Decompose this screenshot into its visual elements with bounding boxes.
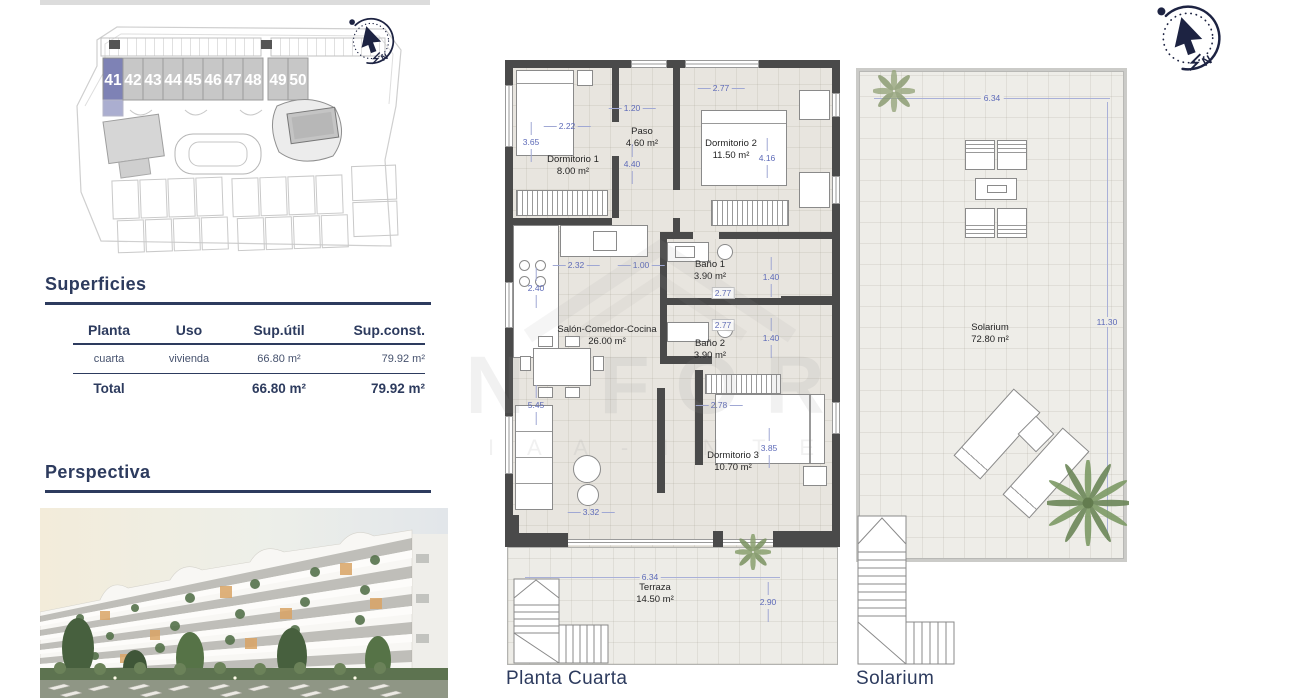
dim-label: 1.40 — [763, 255, 780, 299]
col-planta: Planta — [73, 322, 145, 338]
floor-plan-planta-cuarta: Dormitorio 18.00 m² Paso4.60 m² Dormitor… — [505, 60, 845, 672]
dim-label: 2.40 — [528, 266, 545, 310]
unit-number: 43 — [144, 72, 162, 89]
nightstand — [577, 70, 593, 86]
window — [832, 176, 840, 204]
chair — [593, 356, 604, 371]
cell-planta: cuarta — [73, 353, 145, 365]
wall — [513, 218, 612, 225]
room-label: Terraza14.50 m² — [636, 582, 674, 606]
superficies-section: Superficies Planta Uso Sup.útil Sup.cons… — [45, 274, 431, 402]
window — [832, 93, 840, 117]
wall — [660, 232, 840, 239]
col-sup-const: Sup.const. — [325, 322, 425, 338]
chair — [565, 387, 580, 398]
table-row: cuarta vivienda 66.80 m² 79.92 m² — [73, 345, 425, 373]
wall — [505, 60, 840, 68]
plant-icon — [735, 534, 771, 570]
room-label: Baño 23.90 m² — [694, 338, 726, 362]
dim-label: 1.20 — [607, 103, 658, 113]
total-sup-util: 66.80 m² — [233, 381, 325, 396]
staircase — [513, 578, 609, 664]
plan-caption-planta-cuarta: Planta Cuarta — [506, 668, 627, 690]
wall — [612, 156, 619, 218]
toilet — [717, 244, 733, 260]
bathroom-sink-basin — [675, 246, 695, 258]
building-block — [103, 114, 167, 179]
building-render-photo — [40, 508, 448, 698]
door-opening — [693, 232, 719, 239]
chair — [997, 208, 1027, 238]
unit-number: 45 — [184, 72, 202, 89]
dim-label: 1.00 — [616, 260, 667, 270]
dim-label: 11.30 — [1094, 317, 1121, 327]
page: 41 42 43 44 45 46 47 48 49 50 — [0, 0, 1290, 698]
unit-number: 46 — [204, 72, 222, 89]
perspectiva-section: Perspectiva — [45, 462, 431, 493]
dim-label: 2.77 — [712, 287, 735, 299]
window — [505, 85, 513, 147]
chair — [965, 140, 995, 170]
unit-number: 48 — [244, 72, 262, 89]
room-label: Dormitorio 211.50 m² — [705, 138, 757, 162]
dim-label: 3.85 — [761, 426, 778, 470]
sliding-door — [568, 539, 713, 545]
total-sup-const: 79.92 m² — [325, 381, 425, 396]
superficies-table: Planta Uso Sup.útil Sup.const. cuarta vi… — [73, 317, 425, 402]
wall — [713, 531, 723, 547]
wall — [505, 533, 568, 547]
table-inlay — [987, 185, 1007, 193]
dim-label: 2.78 — [694, 400, 745, 410]
chair — [520, 356, 531, 371]
window — [685, 60, 759, 68]
dim-label: 1.40 — [763, 316, 780, 360]
title-divider — [45, 302, 431, 305]
dim-label: 5.45 — [528, 383, 545, 427]
unit-number: 50 — [289, 72, 306, 89]
room-label: Solarium72.80 m² — [971, 322, 1009, 346]
wall — [612, 68, 619, 122]
closet — [799, 90, 830, 120]
wardrobe — [516, 190, 608, 216]
room-label: Dormitorio 310.70 m² — [707, 450, 759, 474]
kitchen-appliance — [593, 231, 617, 251]
wall — [781, 296, 840, 305]
wardrobe — [711, 200, 789, 226]
dim-label: 3.65 — [523, 120, 540, 164]
compass-icon: N — [1150, 0, 1226, 76]
dim-label: 2.32 — [551, 260, 602, 270]
compass-icon: N — [344, 14, 398, 68]
unit-number: 47 — [224, 72, 241, 89]
entry-door — [631, 60, 667, 68]
wall — [695, 370, 703, 465]
col-uso: Uso — [145, 322, 233, 338]
dining-table — [533, 348, 591, 386]
dim-label: 6.34 — [981, 93, 1004, 103]
side-table — [573, 455, 601, 483]
unit-number: 41 — [104, 72, 122, 89]
col-sup-util: Sup.útil — [233, 322, 325, 338]
wall — [773, 531, 840, 547]
dim-label: 2.77 — [712, 319, 735, 331]
floor-plan-solarium: 6.34 11.30 Solarium72.80 m² — [855, 62, 1133, 674]
table-header: Planta Uso Sup.útil Sup.const. — [73, 317, 425, 343]
wall — [673, 68, 680, 190]
side-table — [577, 484, 599, 506]
wardrobe — [705, 374, 781, 394]
room-label: Dormitorio 18.00 m² — [547, 154, 599, 178]
dim-label: 3.32 — [566, 507, 617, 517]
stair-core-icon — [109, 40, 120, 49]
chair — [997, 140, 1027, 170]
cell-uso: vivienda — [145, 353, 233, 365]
unit-number: 49 — [269, 72, 287, 89]
perspectiva-title: Perspectiva — [45, 462, 431, 483]
room-label: Salón-Comedor-Cocina26.00 m² — [557, 324, 656, 348]
unit-number: 42 — [124, 72, 141, 89]
nightstand — [803, 466, 827, 486]
staircase — [856, 514, 956, 666]
chair — [965, 208, 995, 238]
wall — [660, 298, 786, 305]
cell-sup-const: 79.92 m² — [325, 353, 425, 365]
cell-sup-util: 66.80 m² — [233, 353, 325, 365]
dim-label: 4.16 — [759, 136, 776, 180]
top-strip — [40, 0, 430, 5]
pool-outline — [175, 134, 261, 174]
room-label: Baño 13.90 m² — [694, 259, 726, 283]
closet — [799, 172, 830, 208]
plant-icon — [873, 70, 915, 112]
palm-tree-icon — [1047, 460, 1129, 546]
parking-row — [101, 38, 261, 56]
window — [505, 282, 513, 328]
window — [832, 402, 840, 434]
superficies-title: Superficies — [45, 274, 431, 295]
dim-label: 2.22 — [542, 121, 593, 131]
dim-label: 2.77 — [696, 83, 747, 93]
chair — [538, 336, 553, 347]
dim-label: 6.34 — [640, 572, 661, 582]
wall — [657, 388, 665, 493]
unit-number: 44 — [164, 72, 182, 89]
stair-core-icon — [261, 40, 272, 49]
window — [505, 416, 513, 474]
dim-label: 4.40 — [624, 142, 641, 186]
title-divider — [45, 490, 431, 493]
dim-label: 2.90 — [760, 580, 777, 624]
total-label: Total — [73, 381, 145, 396]
plan-caption-solarium: Solarium — [856, 668, 934, 690]
table-total-row: Total 66.80 m² 79.92 m² — [73, 374, 425, 402]
